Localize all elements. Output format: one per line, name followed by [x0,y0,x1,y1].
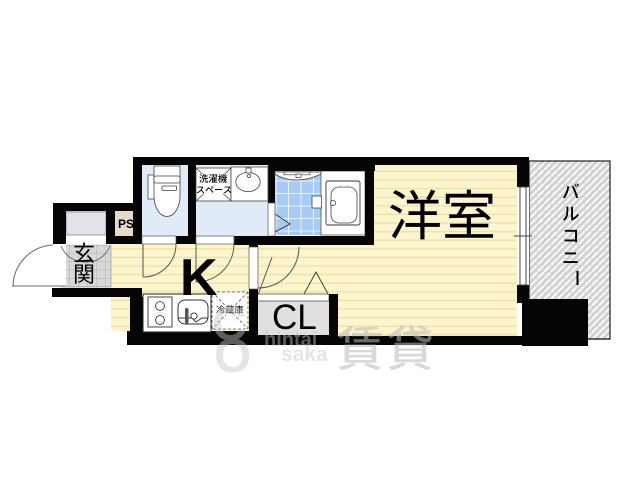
svg-text:saka: saka [281,343,328,366]
svg-text:O: O [214,330,251,383]
svg-text:PS: PS [118,217,134,231]
